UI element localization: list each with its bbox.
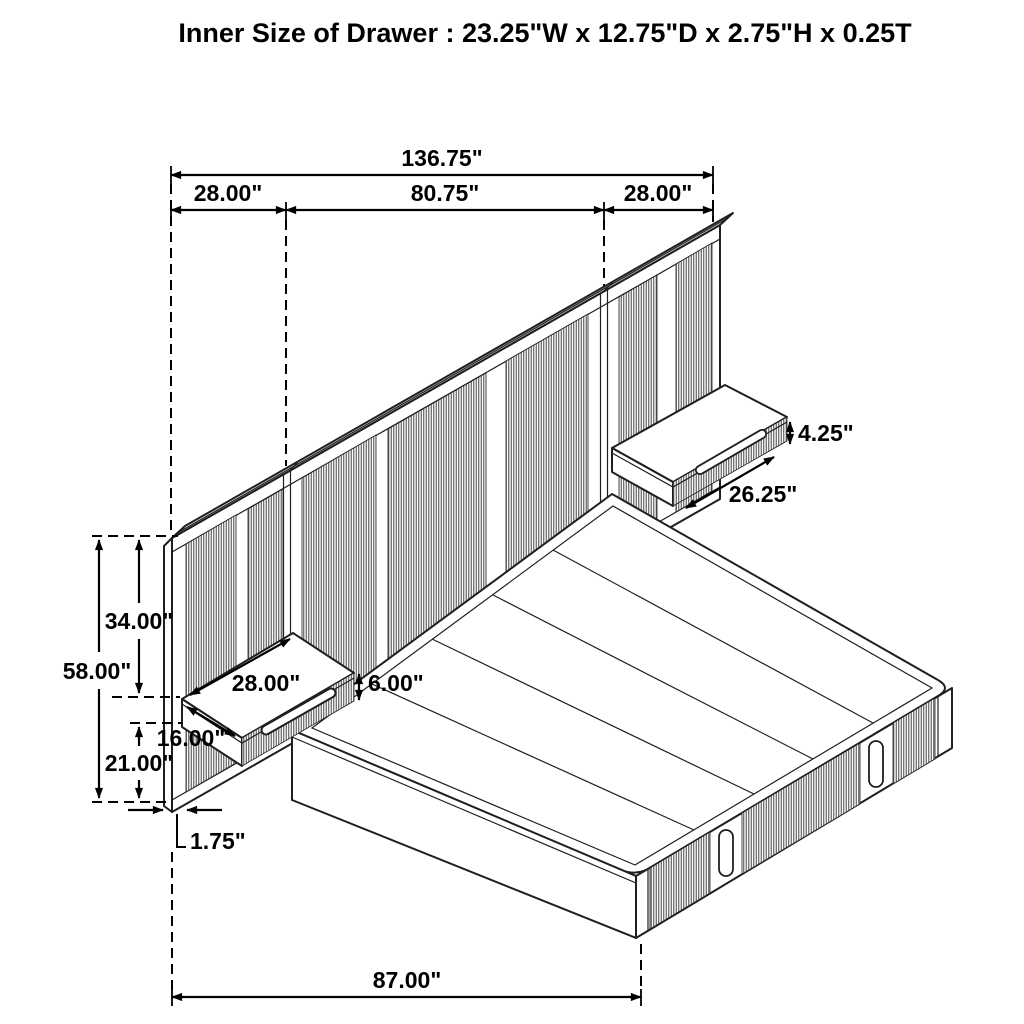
left-nightstand-height-label: 6.00" <box>368 670 424 696</box>
headboard-width-label: 80.75" <box>411 180 479 206</box>
dim-segment-widths: 28.00" 80.75" 28.00" <box>171 180 713 220</box>
left-nightstand-depth-label: 16.00" <box>157 725 225 751</box>
foot-drawer-handle-left <box>719 830 733 876</box>
right-nightstand-width-label: 26.25" <box>729 481 797 507</box>
right-panel-width-label: 28.00" <box>624 180 692 206</box>
panel-thickness-label: 1.75" <box>190 828 246 854</box>
panel-upper-height-label: 34.00" <box>105 608 173 634</box>
drawing-title: Inner Size of Drawer : 23.25"W x 12.75"D… <box>178 18 912 48</box>
technical-drawing-page: Inner Size of Drawer : 23.25"W x 12.75"D… <box>0 0 1024 1024</box>
left-nightstand-width-label: 28.00" <box>232 670 300 696</box>
foot-drawer-handle-right <box>869 741 883 787</box>
bed-technical-drawing: Inner Size of Drawer : 23.25"W x 12.75"D… <box>0 0 1024 1024</box>
panel-lower-height-label: 21.00" <box>105 750 173 776</box>
bed-length-label: 87.00" <box>373 967 441 993</box>
right-nightstand-height-label: 4.25" <box>798 420 854 446</box>
dim-panel-thickness: 1.75" <box>128 810 246 854</box>
panel-total-height-label: 58.00" <box>63 658 131 684</box>
overall-width-label: 136.75" <box>401 145 482 171</box>
dim-overall-width: 136.75" <box>171 145 713 184</box>
left-panel-width-label: 28.00" <box>194 180 262 206</box>
